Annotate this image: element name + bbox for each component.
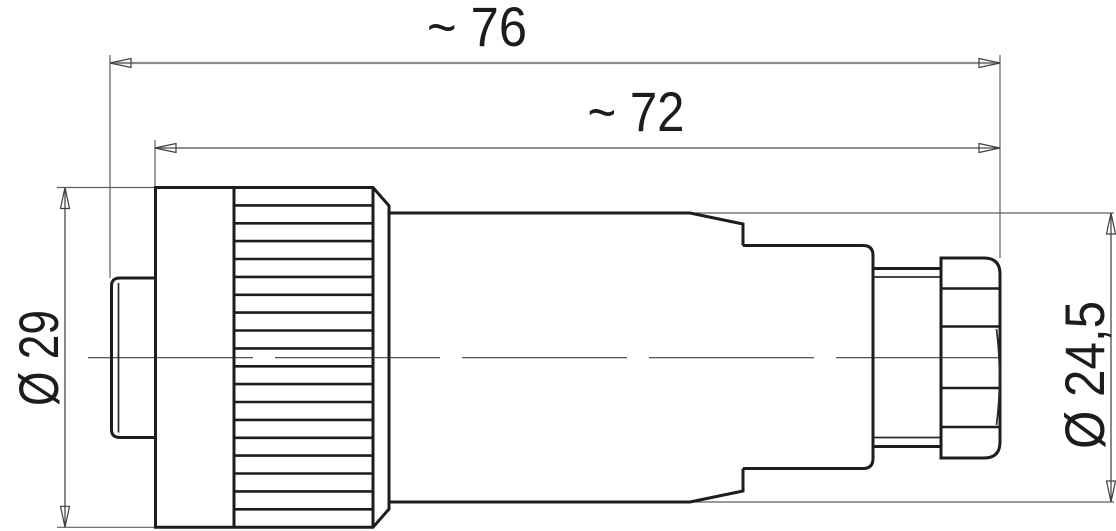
background (0, 0, 1116, 531)
technical-drawing-page: ~ 76 ~ 72 Ø 29 Ø 24,5 (0, 0, 1116, 531)
dim-label-rear-diameter: Ø 24,5 (1053, 301, 1116, 449)
connector-drawing-canvas: ~ 76 ~ 72 Ø 29 Ø 24,5 (0, 0, 1116, 531)
dim-label-housing-length: ~ 72 (588, 80, 685, 143)
dim-label-front-diameter: Ø 29 (7, 310, 70, 406)
dim-label-overall-length: ~ 76 (427, 0, 527, 58)
